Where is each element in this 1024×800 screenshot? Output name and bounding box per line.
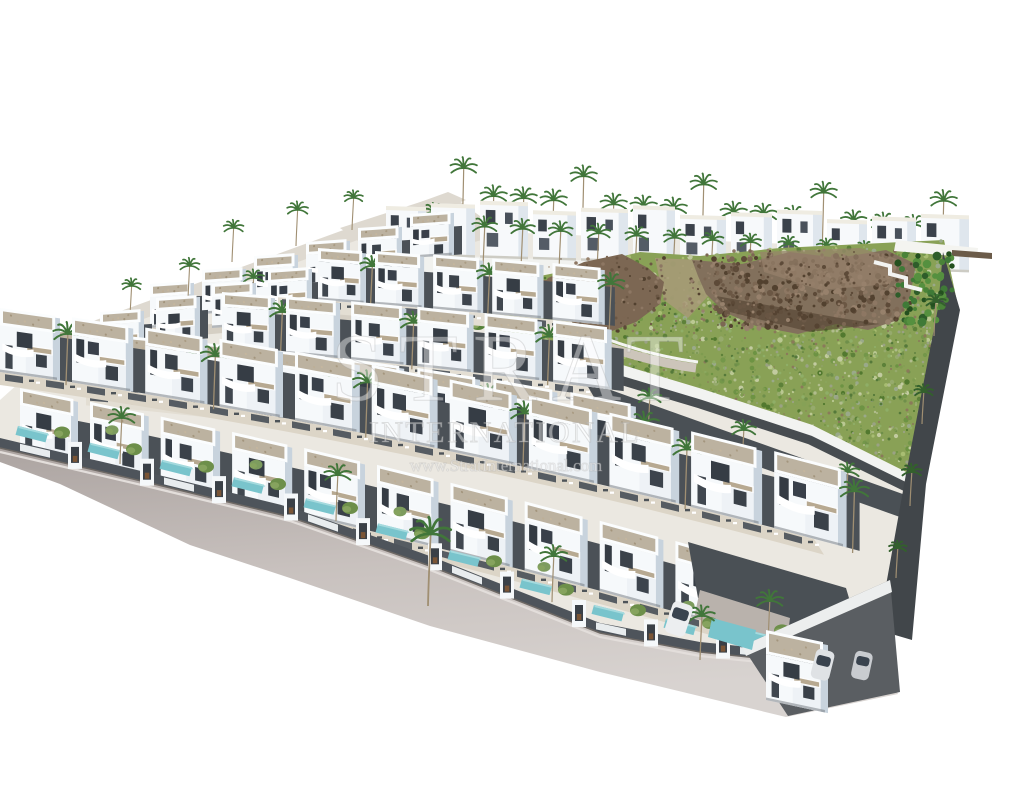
svg-text:www.StratInternational.com: www.StratInternational.com: [410, 456, 602, 475]
svg-text:STRAT: STRAT: [331, 314, 699, 421]
svg-text:INTERNATIONAL: INTERNATIONAL: [369, 416, 641, 449]
